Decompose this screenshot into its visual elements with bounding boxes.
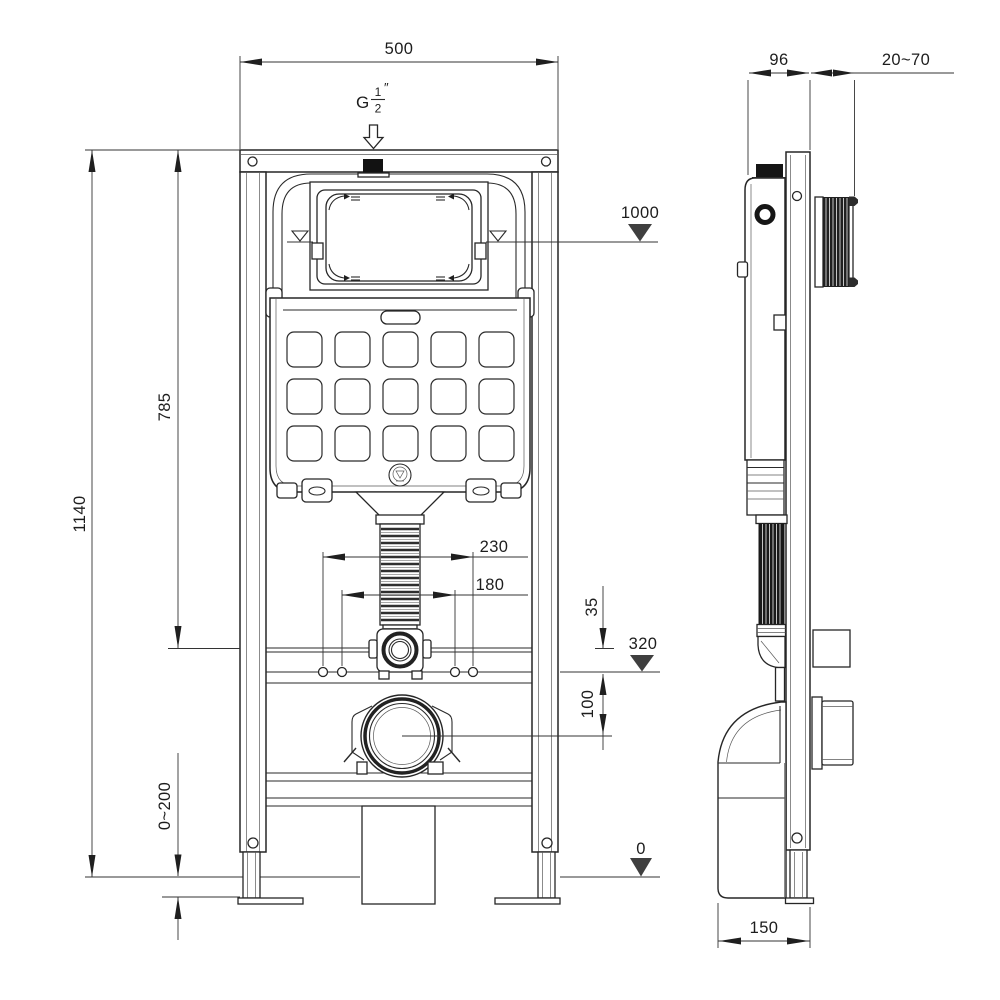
- side-rail-hole-bottom: [792, 833, 802, 843]
- side-flush-connector: [776, 668, 785, 702]
- dim-width-500: 500: [240, 40, 558, 149]
- top-rail-hole-right: [542, 157, 551, 166]
- dim-label-20-70: 20~70: [882, 51, 930, 69]
- side-foot-plate: [786, 898, 814, 904]
- inlet-thread-label: G 1 2 ″: [356, 80, 389, 149]
- panel-clip-left: [312, 243, 323, 259]
- flush-pipe: [356, 492, 444, 635]
- side-frame-rail: [786, 152, 810, 850]
- arrowhead-left: [240, 59, 262, 66]
- datum-label-0: 0: [636, 840, 646, 858]
- flush-pipe-collar: [376, 515, 424, 524]
- side-flush-elbow: [758, 637, 785, 668]
- inlet-numerator: 1: [375, 85, 382, 99]
- inlet-down-arrow-icon: [364, 125, 383, 149]
- foot-plate-right: [495, 898, 560, 904]
- dim-height-1140: 1140: [71, 150, 240, 877]
- dim-label-1140: 1140: [71, 495, 89, 532]
- dim-label-0-200: 0~200: [156, 782, 174, 830]
- dim-label-180: 180: [476, 576, 505, 594]
- side-flush-pipe: [756, 515, 787, 701]
- corrugated-pipe-ribs: [381, 529, 419, 620]
- side-view: 96 20~70: [718, 51, 954, 948]
- datum-label-320: 320: [629, 635, 658, 653]
- panel-clip-right: [475, 243, 486, 259]
- tank-rib-grid: [287, 332, 514, 461]
- dim-label-100: 100: [579, 690, 597, 719]
- side-tank-bottom: [747, 460, 784, 515]
- side-tank-bracket: [774, 315, 786, 330]
- leg-hole-left: [248, 838, 258, 848]
- arrowhead-right: [536, 59, 558, 66]
- dim-offset-35: 35: [583, 586, 607, 649]
- flush-funnel: [356, 492, 444, 516]
- adjustable-foot-left: [238, 852, 303, 904]
- side-cistern: [738, 164, 789, 515]
- side-pipe-collar: [756, 515, 787, 524]
- datum-triangle-320: [630, 655, 654, 672]
- dim-wall-gap: 20~70: [811, 51, 954, 196]
- datum-1000: 1000: [486, 204, 659, 242]
- side-rail-hole-top: [793, 192, 802, 201]
- inlet-fitting: [363, 159, 383, 173]
- side-foot: [786, 850, 814, 904]
- top-rail-hole-left: [248, 157, 257, 166]
- datum-320: 320: [560, 635, 660, 672]
- side-inlet-cap: [756, 164, 783, 177]
- tank-slot: [381, 311, 420, 324]
- side-fixing-box: [813, 630, 850, 667]
- cistern-frame-drawing: 500 G 1 2 ″: [0, 0, 1000, 1000]
- dim-label-500: 500: [385, 40, 414, 58]
- side-outlet-stub: [812, 697, 853, 769]
- datum-label-1000: 1000: [621, 204, 659, 222]
- dim-foot-adjust: 0~200: [156, 753, 182, 940]
- leg-hole-right: [542, 838, 552, 848]
- dim-outlet-150: 150: [718, 903, 810, 948]
- side-waste-elbow: [718, 702, 786, 898]
- bracket-screw-top: [849, 197, 858, 207]
- inlet-denominator: 2: [375, 102, 382, 116]
- adjustable-foot-right: [495, 852, 560, 904]
- technical-drawing-page: 500 G 1 2 ″: [0, 0, 1000, 1000]
- datum-0: 0: [630, 840, 652, 877]
- inlet-prefix: G: [356, 93, 370, 112]
- inlet-fitting-base: [358, 173, 389, 177]
- dim-label-150: 150: [750, 919, 779, 937]
- side-pipe-band: [757, 625, 786, 637]
- foot-plate-left: [238, 898, 303, 904]
- dim-label-96: 96: [769, 51, 788, 69]
- dim-label-35: 35: [583, 597, 601, 616]
- datum-triangle-1000: [628, 224, 652, 242]
- dim-label-785: 785: [156, 393, 174, 422]
- cistern-tank: [266, 288, 534, 502]
- waste-bend-cover-box: [362, 806, 435, 904]
- datum-triangle-0: [630, 858, 652, 877]
- bracket-screw-bottom: [849, 278, 858, 288]
- dim-label-230: 230: [480, 538, 509, 556]
- inlet-inch-mark: ″: [384, 80, 389, 95]
- side-tank-clip: [738, 262, 748, 277]
- frame-top-rail: [240, 150, 558, 172]
- inspection-box-inner: [326, 194, 472, 281]
- frame-leg-right: [532, 172, 558, 852]
- frame-leg-left: [240, 172, 266, 852]
- front-view: 500 G 1 2 ″: [71, 40, 660, 940]
- side-fill-valve-ring: [757, 207, 773, 223]
- wall-bracket-block: [815, 197, 858, 288]
